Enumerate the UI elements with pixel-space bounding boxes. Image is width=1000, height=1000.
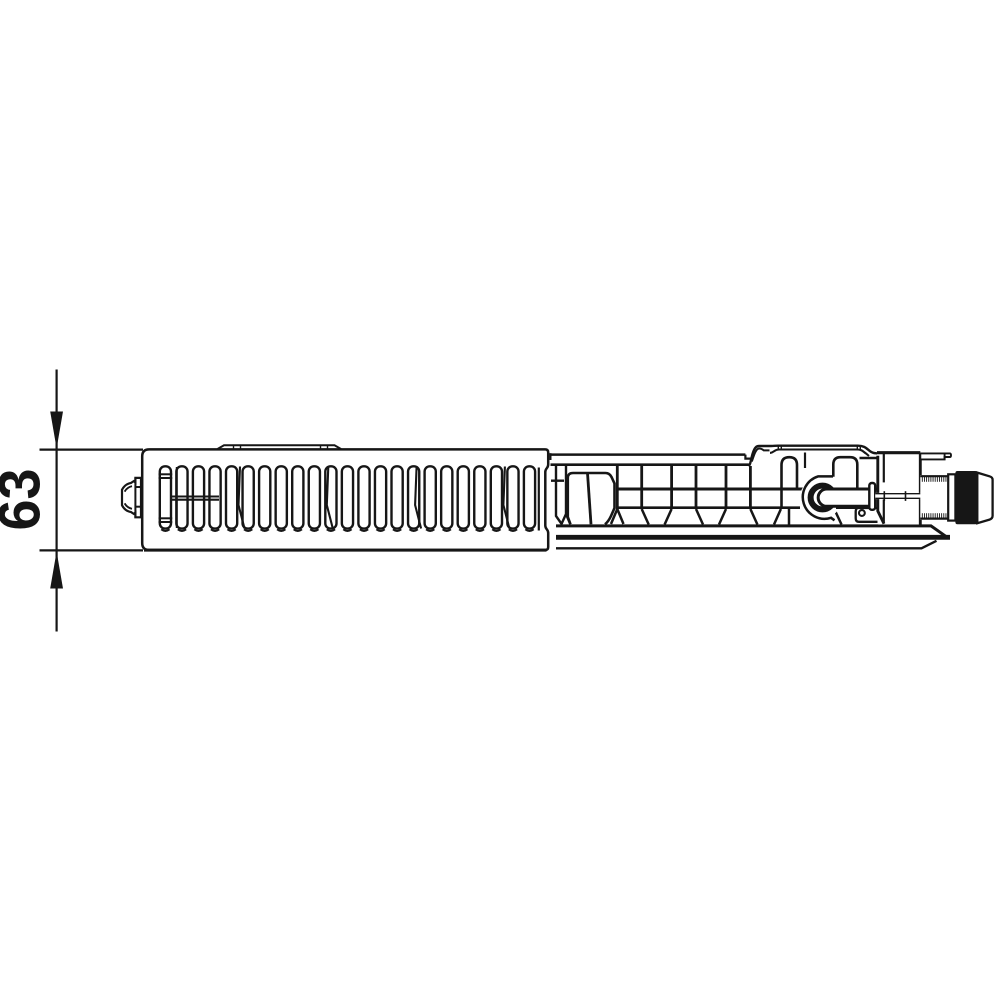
svg-text:63: 63 bbox=[0, 469, 53, 531]
